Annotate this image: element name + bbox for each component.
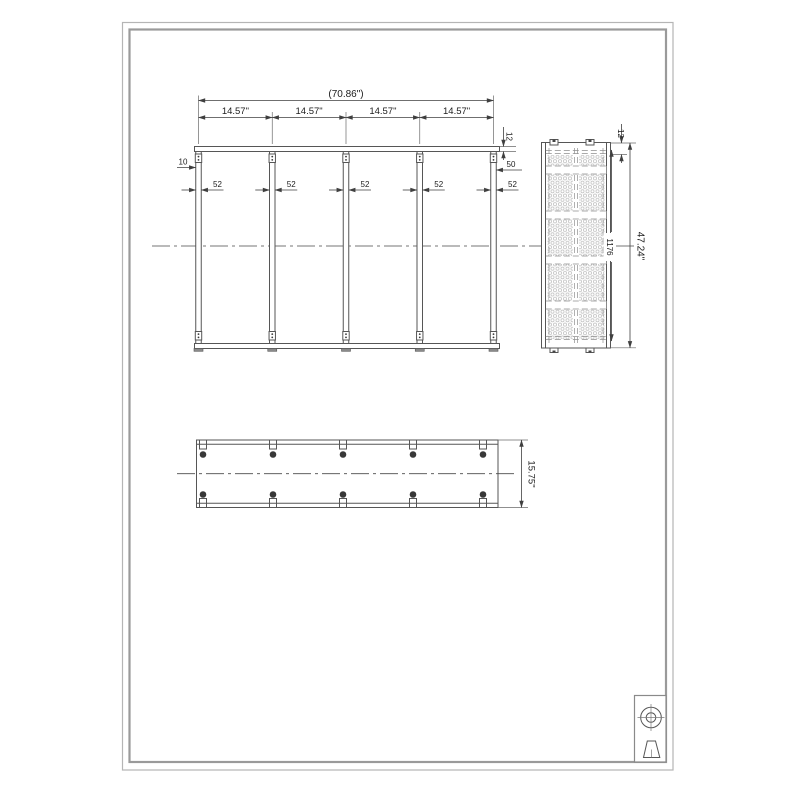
dim-right-offset: 50 xyxy=(507,160,516,169)
plan-view-geometry xyxy=(177,440,517,508)
dim-shelf-thickness: 12 xyxy=(505,132,514,141)
front-view-geometry xyxy=(194,147,500,352)
post xyxy=(491,152,497,344)
plan-view: 15.75" xyxy=(177,440,537,508)
dim-bay-width: 14.57" xyxy=(443,106,470,117)
mesh-panel-right xyxy=(579,155,605,339)
front-view: (70.86") 14.57" 14.57" 14.57" 14.57" 12 … xyxy=(177,89,522,351)
drawing-frame xyxy=(123,23,674,771)
side-view: 12 1176 47.24" xyxy=(542,124,646,353)
mesh-panel-left xyxy=(548,155,574,339)
drawing-sheet: (70.86") 14.57" 14.57" 14.57" 14.57" 12 … xyxy=(0,0,800,800)
dim-plan-depth: 15.75" xyxy=(526,460,537,487)
side-view-geometry xyxy=(542,140,611,353)
dim-side-inner-height: 1176 xyxy=(605,238,614,256)
dim-left-offset: 10 xyxy=(179,158,188,167)
dim-post-width: 52 xyxy=(287,180,296,189)
post xyxy=(196,152,202,344)
dim-bay-width: 14.57" xyxy=(222,106,249,117)
side-feet xyxy=(550,348,594,353)
post xyxy=(270,152,276,344)
dim-overall-width: (70.86") xyxy=(328,89,363,100)
bottom-shelf xyxy=(195,344,500,349)
dim-side-top-thickness: 12 xyxy=(616,129,625,138)
dim-bay-width: 14.57" xyxy=(369,106,396,117)
dim-post-width: 52 xyxy=(434,180,443,189)
dim-bay-width: 14.57" xyxy=(296,106,323,117)
dim-side-overall-height: 47.24" xyxy=(635,232,646,261)
post xyxy=(417,152,423,344)
bottom-connectors xyxy=(195,332,496,341)
top-shelf xyxy=(195,147,500,152)
frame-outer xyxy=(123,23,674,771)
front-view-dimensions: (70.86") 14.57" 14.57" 14.57" 14.57" 12 … xyxy=(177,89,522,190)
dim-post-width: 52 xyxy=(361,180,370,189)
cad-drawing: (70.86") 14.57" 14.57" 14.57" 14.57" 12 … xyxy=(0,0,800,800)
post xyxy=(343,152,349,344)
dim-post-width: 52 xyxy=(508,180,517,189)
dim-post-width: 52 xyxy=(213,180,222,189)
top-connectors xyxy=(195,154,496,163)
title-block xyxy=(635,696,667,763)
